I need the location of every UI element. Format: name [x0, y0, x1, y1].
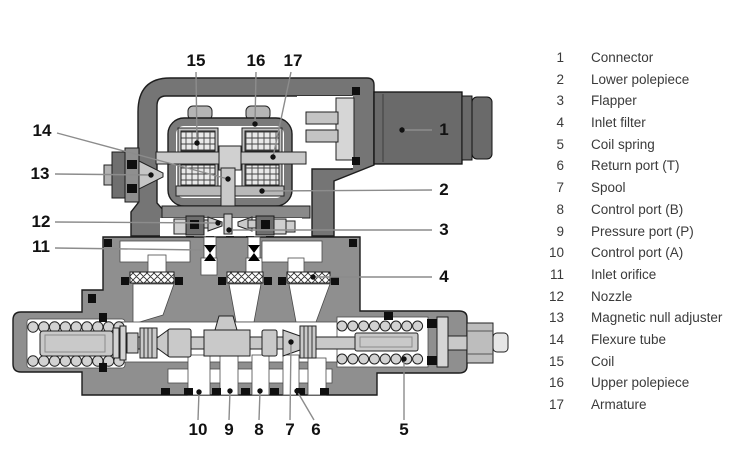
legend-row-3: 3Flapper	[545, 90, 730, 112]
legend-label: Connector	[591, 47, 653, 69]
servo-valve-figure: 1234567891011121314151617 1Connector2Low…	[0, 0, 737, 459]
callout-17: 17	[284, 51, 303, 71]
legend-label: Lower polepiece	[591, 69, 689, 91]
legend-row-12: 12Nozzle	[545, 286, 730, 308]
parts-legend: 1Connector2Lower polepiece3Flapper4Inlet…	[545, 47, 730, 416]
legend-row-6: 6Return port (T)	[545, 155, 730, 177]
legend-number: 9	[545, 221, 564, 243]
legend-label: Upper polepiece	[591, 372, 689, 394]
callout-13: 13	[31, 164, 50, 184]
legend-row-7: 7Spool	[545, 177, 730, 199]
legend-row-15: 15Coil	[545, 351, 730, 373]
callout-10: 10	[189, 420, 208, 440]
legend-label: Magnetic null adjuster	[591, 307, 722, 329]
legend-row-1: 1Connector	[545, 47, 730, 69]
callout-9: 9	[224, 420, 233, 440]
callout-15: 15	[187, 51, 206, 71]
legend-number: 11	[545, 264, 564, 286]
legend-label: Flexure tube	[591, 329, 666, 351]
legend-number: 10	[545, 242, 564, 264]
legend-number: 3	[545, 90, 564, 112]
legend-number: 4	[545, 112, 564, 134]
legend-row-2: 2Lower polepiece	[545, 69, 730, 91]
motor-base	[162, 206, 310, 218]
legend-label: Pressure port (P)	[591, 221, 694, 243]
legend-label: Inlet filter	[591, 112, 646, 134]
legend-number: 6	[545, 155, 564, 177]
legend-number: 7	[545, 177, 564, 199]
legend-number: 13	[545, 307, 564, 329]
callout-14: 14	[33, 121, 52, 141]
callout-16: 16	[247, 51, 266, 71]
legend-label: Coil	[591, 351, 614, 373]
legend-row-9: 9Pressure port (P)	[545, 221, 730, 243]
legend-row-10: 10Control port (A)	[545, 242, 730, 264]
legend-row-16: 16Upper polepiece	[545, 372, 730, 394]
callout-12: 12	[32, 212, 51, 232]
legend-row-11: 11Inlet orifice	[545, 264, 730, 286]
callout-5: 5	[399, 420, 408, 440]
callout-2: 2	[439, 180, 448, 200]
spool-feedback-stem	[215, 316, 237, 330]
legend-label: Return port (T)	[591, 155, 680, 177]
legend-label: Spool	[591, 177, 626, 199]
legend-label: Flapper	[591, 90, 637, 112]
legend-number: 5	[545, 134, 564, 156]
coil-lower-right	[242, 162, 282, 188]
callout-3: 3	[439, 220, 448, 240]
legend-number: 12	[545, 286, 564, 308]
callout-6: 6	[311, 420, 320, 440]
torque-motor	[156, 106, 310, 218]
legend-row-13: 13Magnetic null adjuster	[545, 307, 730, 329]
legend-number: 14	[545, 329, 564, 351]
inlet-filters	[121, 272, 339, 285]
legend-number: 1	[545, 47, 564, 69]
legend-number: 2	[545, 69, 564, 91]
callout-4: 4	[439, 267, 448, 287]
legend-label: Armature	[591, 394, 647, 416]
legend-number: 8	[545, 199, 564, 221]
legend-number: 17	[545, 394, 564, 416]
legend-label: Nozzle	[591, 286, 632, 308]
callout-11: 11	[32, 237, 50, 257]
legend-label: Control port (B)	[591, 199, 683, 221]
legend-row-4: 4Inlet filter	[545, 112, 730, 134]
spring-adjuster	[427, 317, 508, 367]
flexure-tube	[219, 146, 241, 170]
legend-label: Coil spring	[591, 134, 655, 156]
legend-row-17: 17Armature	[545, 394, 730, 416]
legend-number: 16	[545, 372, 564, 394]
legend-label: Inlet orifice	[591, 264, 656, 286]
legend-row-14: 14Flexure tube	[545, 329, 730, 351]
legend-row-5: 5Coil spring	[545, 134, 730, 156]
callout-1: 1	[439, 120, 448, 140]
callout-8: 8	[254, 420, 263, 440]
legend-label: Control port (A)	[591, 242, 683, 264]
callout-7: 7	[285, 420, 294, 440]
legend-number: 15	[545, 351, 564, 373]
legend-row-8: 8Control port (B)	[545, 199, 730, 221]
connector-body	[374, 92, 492, 164]
